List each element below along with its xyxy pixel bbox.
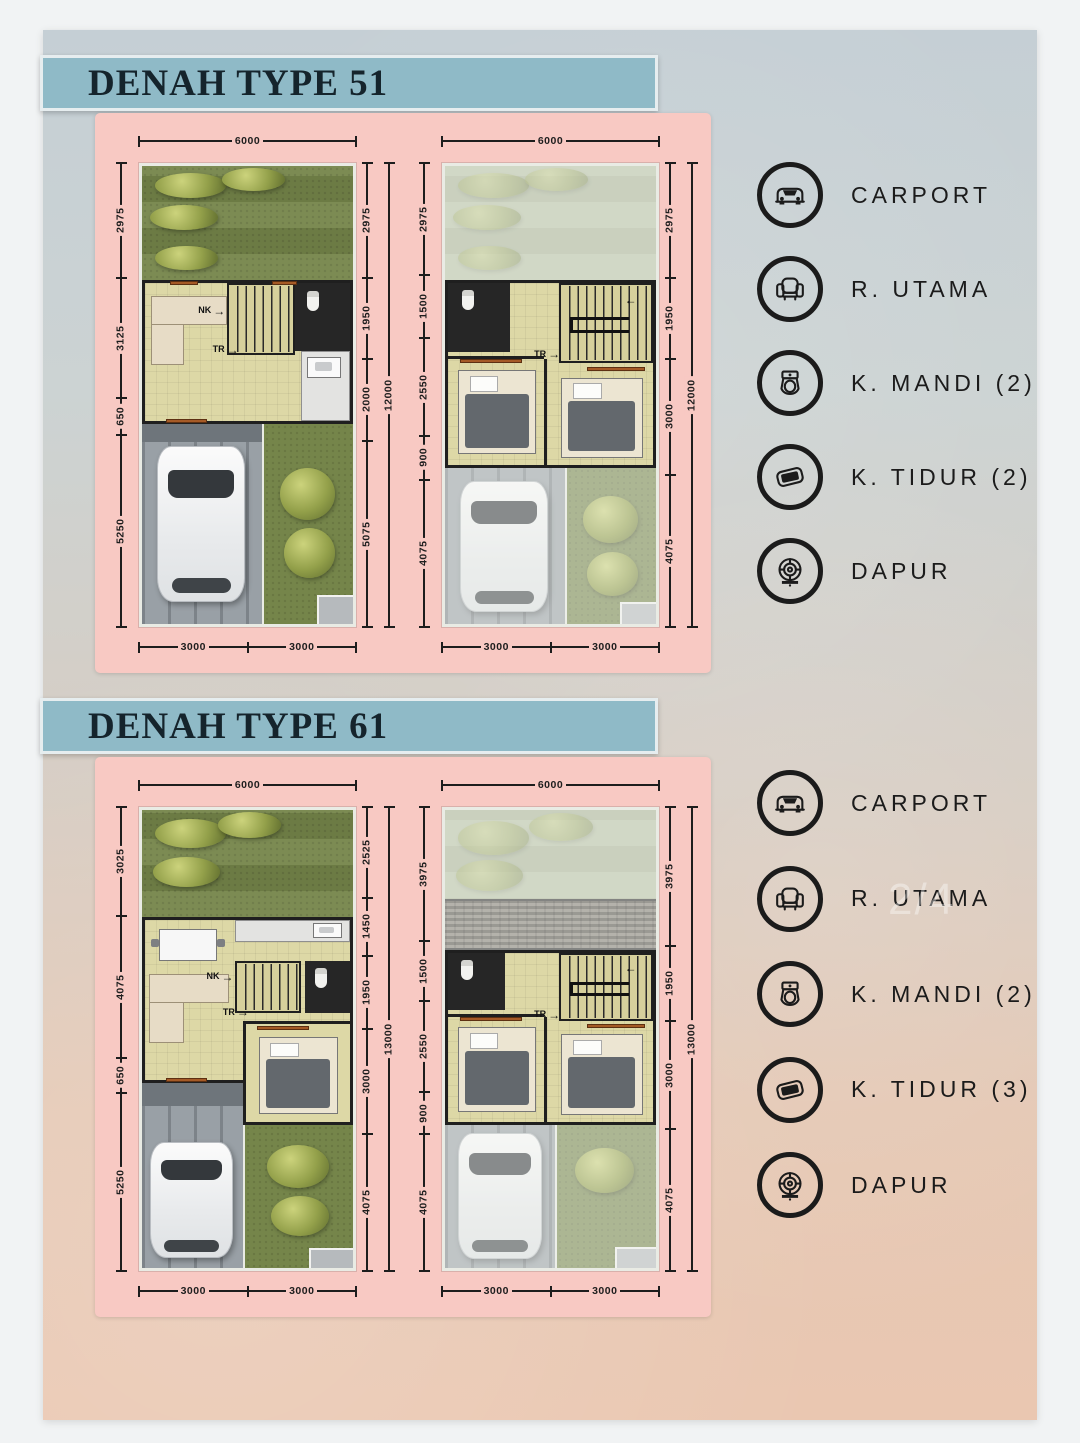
stair-rail bbox=[570, 982, 630, 996]
door-sill bbox=[166, 1078, 207, 1082]
house-floor: NK→ TR→ bbox=[142, 280, 353, 425]
stove-icon bbox=[757, 538, 823, 604]
legend-row-dapur: DAPUR bbox=[757, 1152, 1033, 1218]
stair-down-label: TR→ bbox=[213, 344, 239, 356]
dimension-chain-top: 6000 bbox=[139, 777, 356, 793]
floorplan-panel-type61: 6000 302540756505250 bbox=[95, 757, 711, 1317]
headboard-sill bbox=[257, 1026, 309, 1030]
tree-icon bbox=[150, 205, 218, 230]
toilet bbox=[307, 291, 319, 311]
tree-icon bbox=[222, 168, 285, 191]
headboard-sill bbox=[460, 359, 522, 363]
dimension-chain-overall: 13000 bbox=[379, 807, 399, 1271]
stairs bbox=[559, 953, 653, 1020]
legend-label: CARPORT bbox=[851, 182, 991, 209]
stair-up-label: NK→ bbox=[207, 971, 234, 983]
kitchen-counter bbox=[301, 351, 350, 422]
bathroom bbox=[448, 953, 505, 1010]
tree-icon bbox=[155, 173, 227, 198]
legend-label: K. TIDUR (3) bbox=[851, 1076, 1031, 1103]
bed bbox=[259, 1037, 338, 1113]
legend-row-dapur: DAPUR bbox=[757, 538, 1033, 604]
headboard-sill bbox=[460, 1017, 522, 1021]
tree-icon bbox=[458, 246, 521, 271]
stair-down-label: TR→ bbox=[534, 1009, 560, 1021]
car bbox=[157, 446, 246, 602]
dimension-chain-left: 302540756505250 bbox=[111, 807, 131, 1271]
stair-down-label: TR→ bbox=[223, 1006, 249, 1018]
dimension-chain-left: 297531256505250 bbox=[111, 163, 131, 627]
section-title-banner-type61: DENAH TYPE 61 bbox=[40, 698, 658, 754]
floorplan-lot-type51-upper: TR→ ← bbox=[442, 163, 659, 627]
stairs bbox=[559, 283, 653, 363]
tree-icon bbox=[284, 528, 335, 578]
legend-row-k-mandi: K. MANDI (2) bbox=[757, 961, 1033, 1027]
bed bbox=[458, 1027, 536, 1111]
corner-pad bbox=[309, 1248, 354, 1270]
chair bbox=[151, 939, 159, 947]
legend-type61: CARPORT R. UTAMA K. MANDI (2) K. TIDUR (… bbox=[757, 770, 1033, 1218]
bathroom bbox=[448, 283, 510, 352]
bedroom bbox=[243, 1021, 353, 1125]
side-garden bbox=[565, 468, 656, 624]
interior-wall bbox=[544, 1017, 547, 1121]
dimension-chain-right: 3975195030004075 bbox=[660, 807, 680, 1271]
plan-type61-ground: 6000 302540756505250 bbox=[103, 763, 400, 1311]
dimension-chain-bottom: 30003000 bbox=[442, 1283, 659, 1299]
legend-label: K. TIDUR (2) bbox=[851, 464, 1031, 491]
legend-label: K. MANDI (2) bbox=[851, 981, 1036, 1008]
tree-icon bbox=[453, 205, 521, 230]
porch-strip bbox=[142, 424, 262, 442]
car bbox=[150, 1142, 232, 1259]
pillow-icon bbox=[757, 1057, 823, 1123]
bed bbox=[561, 378, 643, 458]
dimension-chain-top: 6000 bbox=[442, 133, 659, 149]
plan-type51-ground: 6000 297531256505250 NK→ bbox=[103, 119, 400, 667]
stove-icon bbox=[757, 1152, 823, 1218]
floorplan-panel-type51: 6000 297531256505250 NK→ bbox=[95, 113, 711, 673]
dimension-chain-top: 6000 bbox=[139, 133, 356, 149]
pillow-icon bbox=[757, 444, 823, 510]
toilet-icon bbox=[757, 350, 823, 416]
dimension-chain-bottom: 30003000 bbox=[442, 639, 659, 655]
front-garden-faded bbox=[445, 166, 656, 280]
car-icon bbox=[757, 162, 823, 228]
window-sill bbox=[272, 281, 297, 285]
tree-icon bbox=[458, 173, 530, 198]
bed bbox=[561, 1034, 643, 1115]
page-title-type61: DENAH TYPE 61 bbox=[88, 705, 388, 748]
toilet bbox=[461, 960, 473, 980]
stair-down-label: TR→ bbox=[534, 348, 560, 360]
tree-icon bbox=[529, 813, 592, 841]
plan-type51-upper: 6000 2975150025509004075 bbox=[406, 119, 703, 667]
tree-icon bbox=[271, 1196, 329, 1236]
dining-table bbox=[159, 929, 216, 961]
side-garden bbox=[555, 1125, 656, 1268]
chair bbox=[217, 939, 225, 947]
tree-icon bbox=[155, 819, 227, 849]
corner-pad bbox=[317, 595, 354, 625]
legend-label: DAPUR bbox=[851, 1172, 952, 1199]
tree-icon bbox=[155, 246, 218, 271]
car bbox=[460, 481, 549, 612]
upper-floor: TR→ ← bbox=[445, 280, 656, 469]
stair-up-label: NK→ bbox=[198, 305, 225, 317]
dimension-chain-overall: 12000 bbox=[682, 163, 702, 627]
armchair-icon bbox=[757, 256, 823, 322]
interior-wall bbox=[448, 356, 544, 359]
front-garden bbox=[142, 810, 353, 917]
plan-type61-upper: 6000 3975150025509004075 bbox=[406, 763, 703, 1311]
dimension-chain-right: 2975195030004075 bbox=[660, 163, 680, 627]
legend-label: K. MANDI (2) bbox=[851, 370, 1036, 397]
toilet-icon bbox=[757, 961, 823, 1027]
driveway bbox=[445, 468, 565, 624]
dimension-chain-right: 25251450195030004075 bbox=[357, 807, 377, 1271]
toilet bbox=[462, 290, 474, 310]
legend-label: CARPORT bbox=[851, 790, 991, 817]
dimension-chain-top: 6000 bbox=[442, 777, 659, 793]
tree-icon bbox=[458, 821, 530, 855]
side-garden bbox=[262, 424, 353, 624]
tree-icon bbox=[267, 1145, 329, 1188]
brochure-card: DENAH TYPE 51 6000 297531256505250 bbox=[43, 30, 1037, 1420]
legend-row-k-tidur: K. TIDUR (3) bbox=[757, 1057, 1033, 1123]
front-garden-faded bbox=[445, 810, 656, 950]
door-sill bbox=[166, 419, 207, 423]
legend-type51: CARPORT R. UTAMA K. MANDI (2) K. TIDUR (… bbox=[757, 162, 1033, 604]
dimension-chain-right: 2975195020005075 bbox=[357, 163, 377, 627]
bathroom bbox=[305, 961, 350, 1012]
legend-row-carport: CARPORT bbox=[757, 770, 1033, 836]
kitchen-counter bbox=[235, 920, 350, 942]
dimension-chain-overall: 12000 bbox=[379, 163, 399, 627]
driveway bbox=[445, 1125, 555, 1268]
tree-icon bbox=[575, 1148, 635, 1194]
dimension-chain-overall: 13000 bbox=[682, 807, 702, 1271]
interior-wall bbox=[544, 359, 547, 465]
dimension-chain-left: 2975150025509004075 bbox=[414, 163, 434, 627]
legend-row-r-utama: R. UTAMA bbox=[757, 256, 1033, 322]
legend-row-k-mandi: K. MANDI (2) bbox=[757, 350, 1033, 416]
tree-icon bbox=[456, 860, 524, 891]
side-garden bbox=[243, 1125, 353, 1268]
upper-floor: TR→ ← bbox=[445, 950, 656, 1124]
legend-row-carport: CARPORT bbox=[757, 162, 1033, 228]
tree-icon bbox=[583, 496, 638, 543]
bed bbox=[458, 370, 536, 454]
tree-icon bbox=[218, 812, 281, 838]
floorplan-lot-type61-upper: TR→ ← bbox=[442, 807, 659, 1271]
car bbox=[458, 1133, 542, 1259]
armchair-icon bbox=[757, 866, 823, 932]
car-icon bbox=[757, 770, 823, 836]
headboard-sill bbox=[587, 1024, 644, 1028]
section-title-banner-type51: DENAH TYPE 51 bbox=[40, 55, 658, 111]
legend-label: R. UTAMA bbox=[851, 276, 991, 303]
page-title-type51: DENAH TYPE 51 bbox=[88, 62, 388, 105]
stair-direction-arrow: ← bbox=[625, 962, 637, 974]
floorplan-lot-type61-ground: NK→ TR→ bbox=[139, 807, 356, 1271]
carport-area-faded bbox=[445, 468, 656, 624]
front-garden bbox=[142, 166, 353, 280]
legend-row-k-tidur: K. TIDUR (2) bbox=[757, 444, 1033, 510]
stair-rail bbox=[570, 317, 630, 334]
dimension-chain-bottom: 30003000 bbox=[139, 1283, 356, 1299]
tree-icon bbox=[280, 468, 335, 520]
page-watermark: 2/4 bbox=[888, 875, 955, 925]
corner-pad bbox=[620, 602, 657, 625]
carport-area bbox=[142, 424, 353, 624]
dimension-chain-bottom: 30003000 bbox=[139, 639, 356, 655]
sofa bbox=[149, 974, 227, 1041]
tree-icon bbox=[525, 168, 588, 191]
tree-icon bbox=[587, 552, 638, 596]
window-sill bbox=[170, 281, 199, 285]
dimension-chain-left: 3975150025509004075 bbox=[414, 807, 434, 1271]
legend-label: DAPUR bbox=[851, 558, 952, 585]
floorplan-lot-type51-ground: NK→ TR→ bbox=[139, 163, 356, 627]
carport-area-faded bbox=[445, 1125, 656, 1268]
porch-strip bbox=[142, 1083, 243, 1106]
kitchen-sink bbox=[313, 923, 342, 939]
toilet bbox=[315, 968, 327, 988]
headboard-sill bbox=[587, 367, 644, 371]
stair-direction-arrow: ← bbox=[625, 294, 637, 306]
kitchen-sink bbox=[307, 357, 340, 378]
corner-pad bbox=[615, 1247, 657, 1269]
bathroom bbox=[289, 283, 351, 351]
tree-icon bbox=[153, 857, 221, 887]
